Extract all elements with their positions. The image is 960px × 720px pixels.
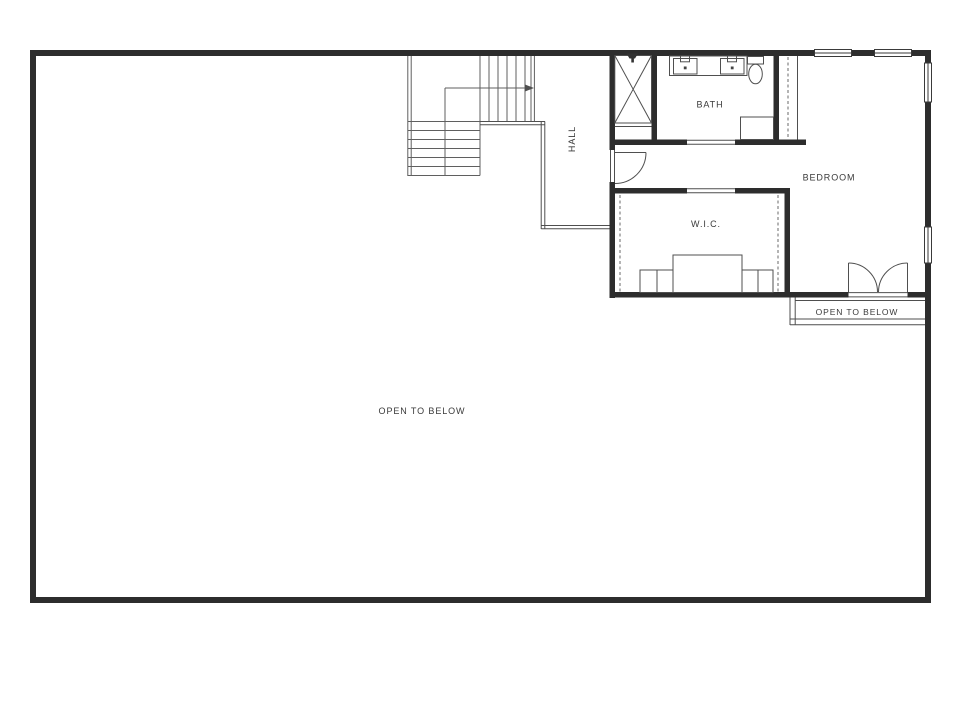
- drain-icon: [684, 67, 687, 70]
- wall-wic-north-left: [610, 188, 688, 194]
- sink-left: [674, 56, 698, 74]
- balcony-french-doors: [849, 263, 908, 292]
- exterior-wall-left: [30, 50, 36, 603]
- exterior-wall-right: [925, 50, 931, 603]
- wall-wic-north-right: [735, 188, 790, 194]
- hall-label: HALL: [567, 126, 577, 152]
- drain-icon: [731, 67, 734, 70]
- hall-railing: [480, 122, 610, 230]
- wall-wic-west: [610, 182, 616, 298]
- windows: [815, 50, 932, 264]
- wall-bath-west-upper: [610, 56, 616, 150]
- toilet-tank: [748, 57, 764, 65]
- wall-bath-south-left: [610, 140, 688, 146]
- window-right-1: [925, 63, 932, 102]
- stair-treads-upper-run: [480, 56, 525, 176]
- bath-entry-opening: [687, 140, 735, 144]
- bedroom-label: BEDROOM: [803, 173, 856, 183]
- sink-right: [721, 56, 745, 74]
- interior-walls: [610, 56, 926, 298]
- wall-shower-east: [652, 56, 658, 140]
- bath-fixtures: [615, 54, 774, 140]
- bedroom-entry-door: [615, 153, 646, 184]
- toilet: [748, 57, 764, 84]
- stair-treads-lower-run: [408, 88, 480, 176]
- wic-entry-opening: [687, 189, 735, 193]
- open-to-below-main-label: OPEN TO BELOW: [379, 406, 466, 416]
- bath-label: BATH: [697, 100, 724, 110]
- vanity: [670, 56, 748, 76]
- exterior-wall-bottom: [30, 597, 931, 603]
- wic-label: W.I.C.: [691, 219, 721, 229]
- shower-head-icon: [627, 54, 639, 63]
- french-door-sill: [849, 293, 908, 297]
- window-right-2: [925, 227, 932, 263]
- bedroom-door-jamb: [611, 150, 615, 182]
- window-top-1: [815, 50, 852, 57]
- wall-bath-east: [774, 56, 780, 140]
- wic-builtin-cabinets: [640, 255, 773, 293]
- toilet-bowl: [749, 64, 763, 84]
- linen-closet: [788, 56, 798, 140]
- wic-center-island: [673, 255, 742, 293]
- exterior-wall-top: [30, 50, 931, 56]
- shower: [615, 54, 652, 127]
- bath-bench: [741, 117, 774, 140]
- floor-plan-page: HALL BATH BEDROOM W.I.C. OPEN TO BELOW O…: [0, 0, 960, 720]
- window-top-2: [875, 50, 912, 57]
- wall-bath-south-right: [735, 140, 806, 146]
- wall-bedroom-south-right: [908, 292, 926, 298]
- wall-wic-east: [785, 194, 791, 298]
- open-to-below-right-label: OPEN TO BELOW: [816, 307, 899, 317]
- room-labels: HALL BATH BEDROOM W.I.C. OPEN TO BELOW O…: [379, 100, 899, 417]
- staircase: [408, 56, 535, 176]
- wic-interior: [620, 195, 778, 293]
- floor-plan-drawing: HALL BATH BEDROOM W.I.C. OPEN TO BELOW O…: [0, 0, 960, 720]
